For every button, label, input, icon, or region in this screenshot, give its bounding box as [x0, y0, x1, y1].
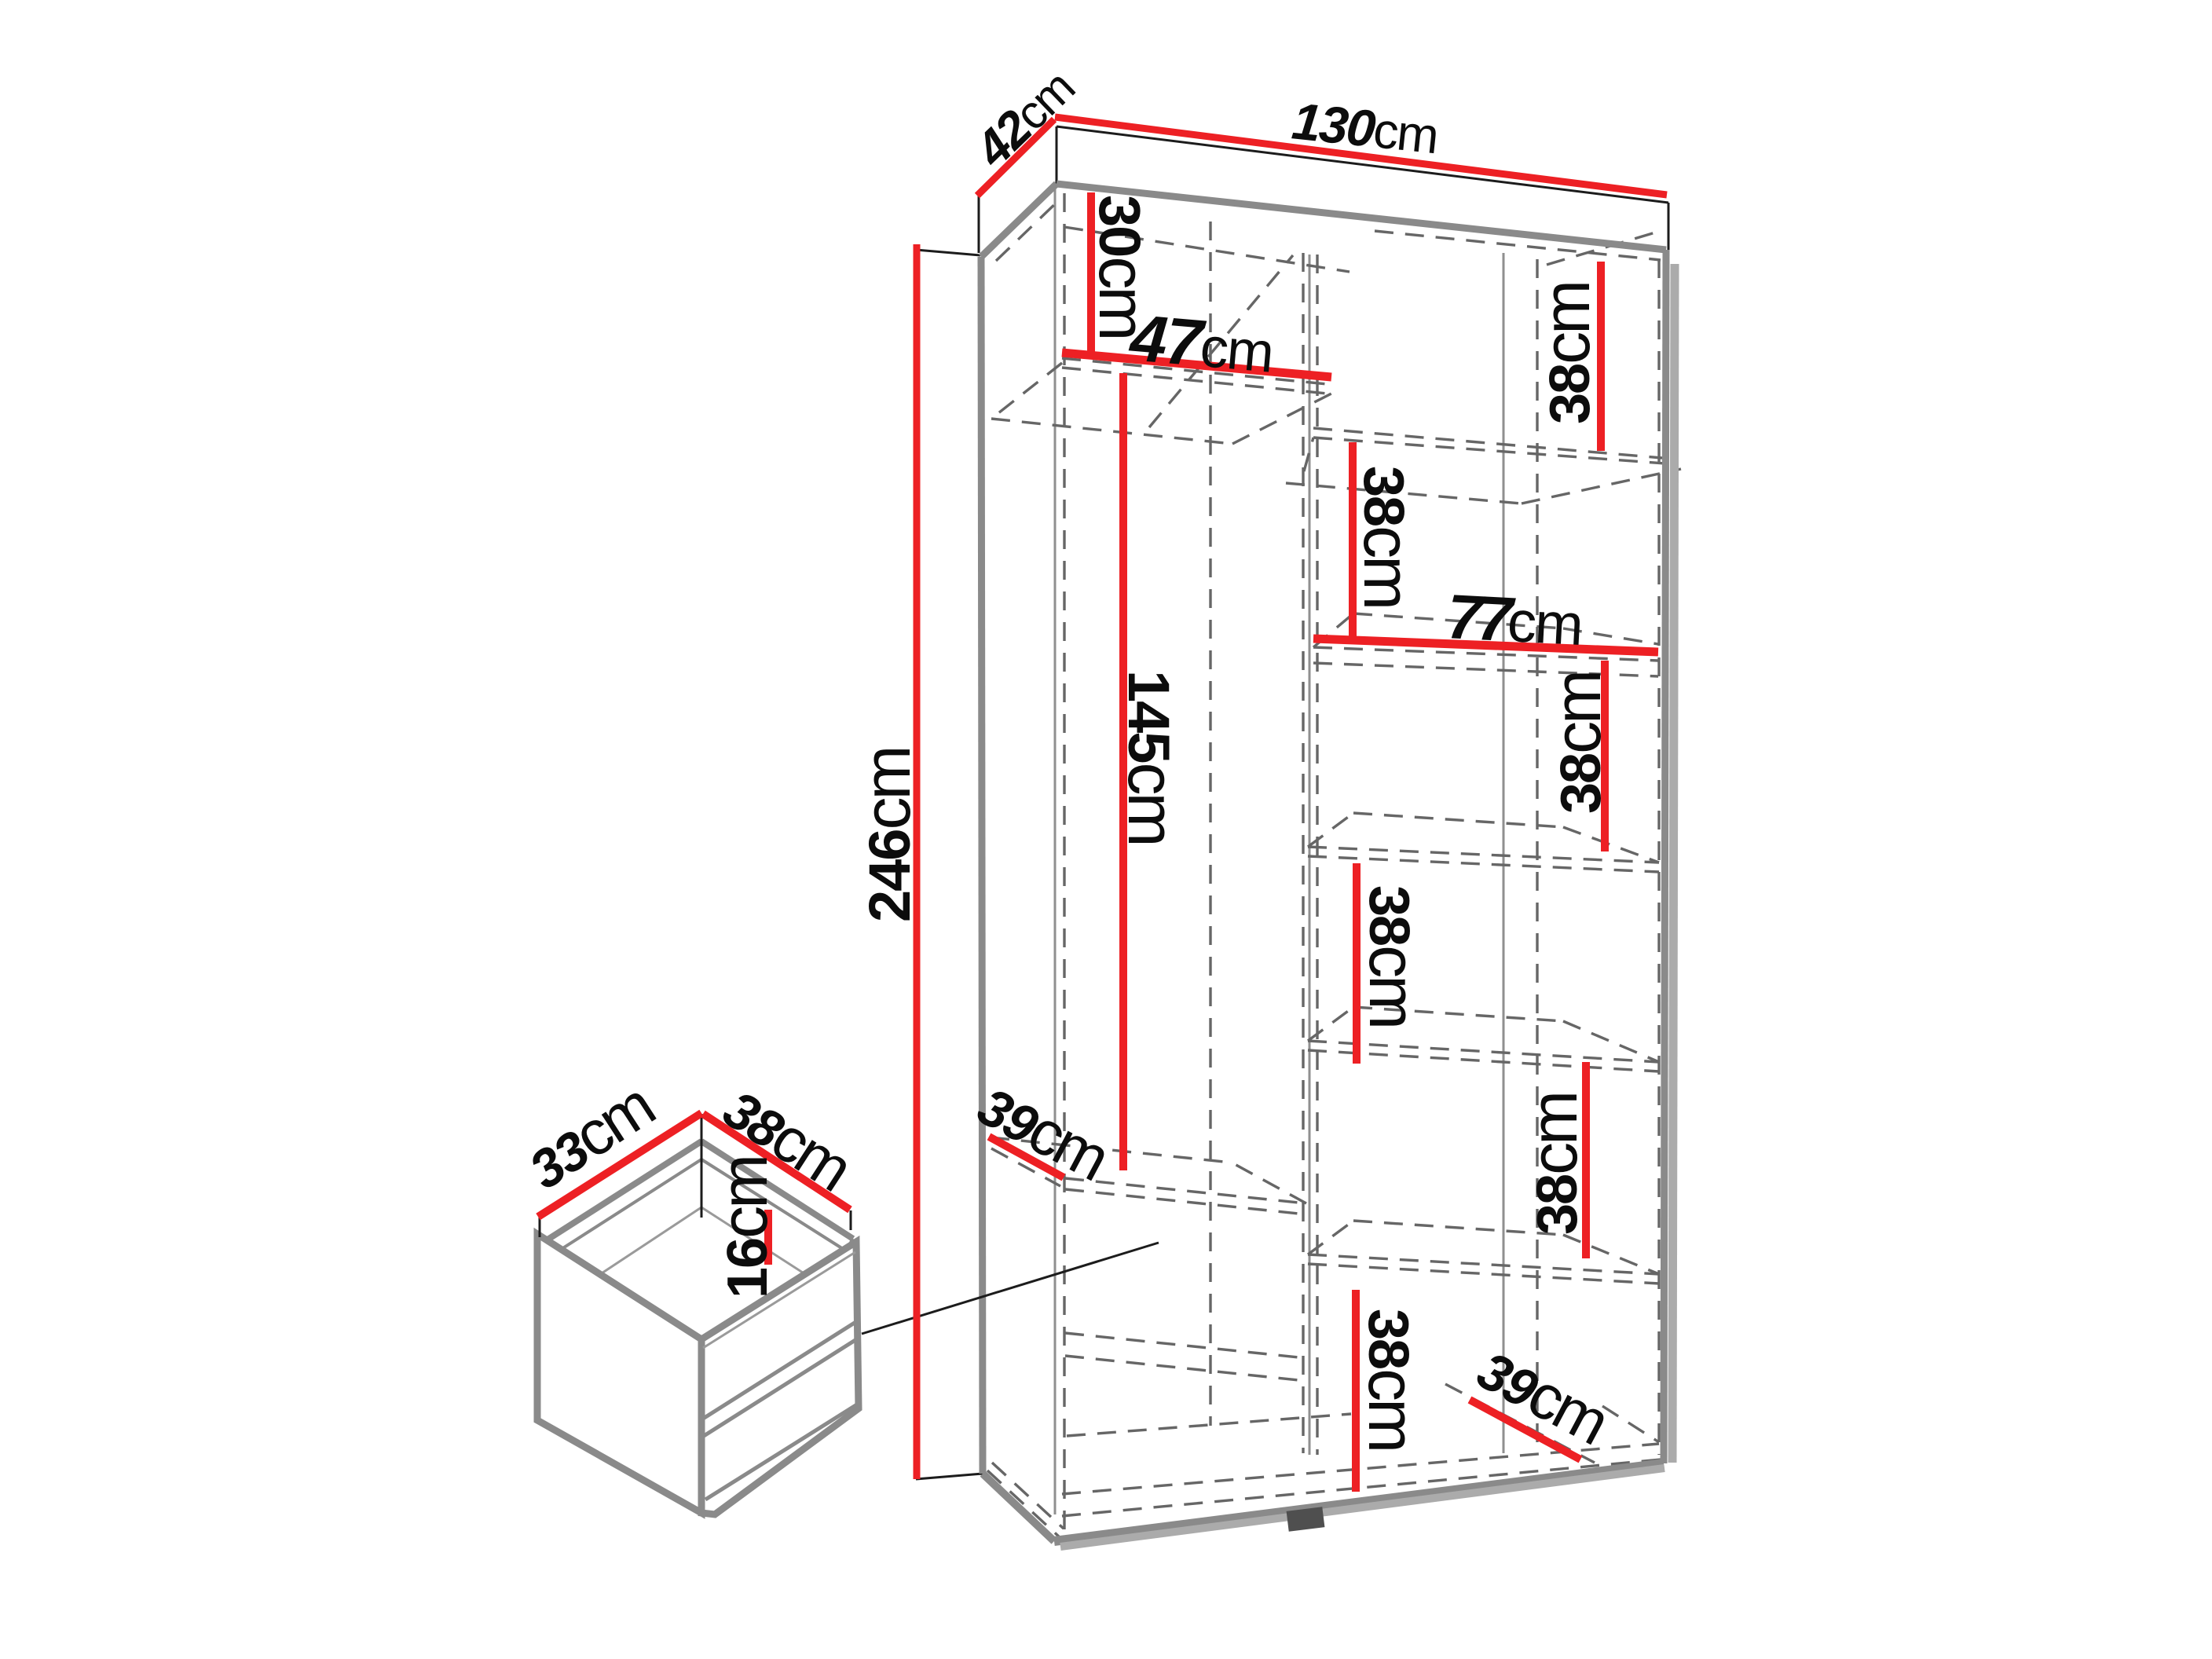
- svg-text:38cm: 38cm: [1529, 283, 1603, 424]
- svg-text:77cm: 77cm: [1445, 581, 1584, 658]
- svg-text:38cm: 38cm: [1356, 885, 1430, 1027]
- svg-text:246cm: 246cm: [850, 749, 924, 922]
- svg-text:38cm: 38cm: [1350, 466, 1424, 607]
- svg-text:16cm: 16cm: [707, 1157, 781, 1298]
- svg-text:38cm: 38cm: [1540, 672, 1614, 814]
- svg-text:38cm: 38cm: [1355, 1309, 1429, 1450]
- svg-text:145cm: 145cm: [1115, 670, 1188, 844]
- svg-text:38cm: 38cm: [1517, 1093, 1591, 1235]
